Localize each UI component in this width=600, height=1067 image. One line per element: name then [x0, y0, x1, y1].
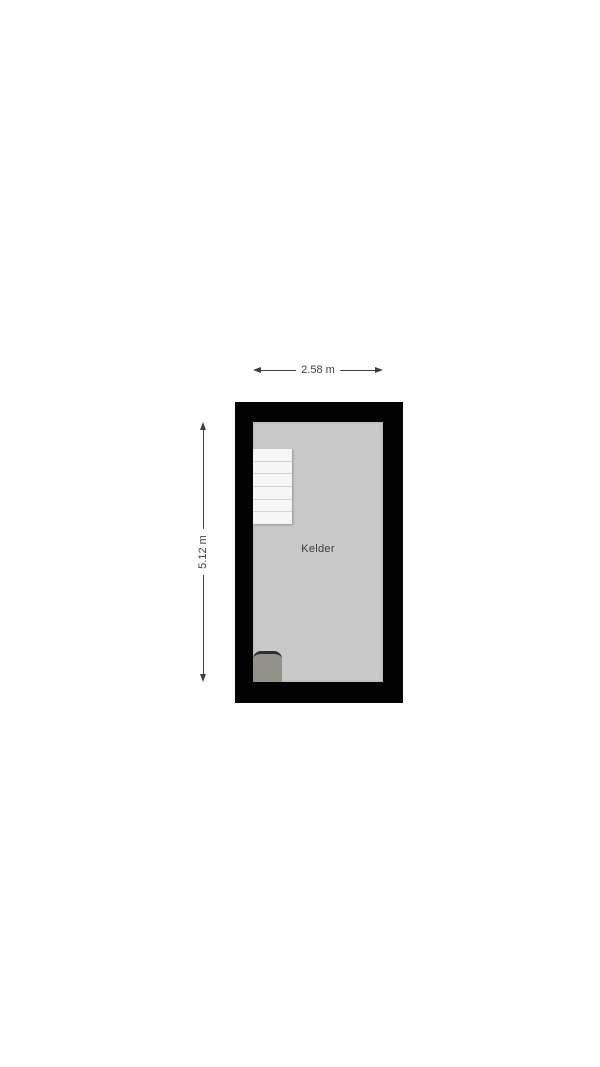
- stair-tread: [253, 449, 292, 462]
- stair-tread: [253, 462, 292, 475]
- dimension-width-label: 2.58 m: [296, 364, 340, 376]
- stair-tread: [253, 512, 292, 524]
- arrow-up-icon: [200, 422, 206, 430]
- stair-tread: [253, 500, 292, 513]
- stairs: [253, 449, 292, 524]
- stair-tread: [253, 487, 292, 500]
- dimension-width: 2.58 m: [253, 363, 383, 377]
- arrow-down-icon: [200, 674, 206, 682]
- dimension-height: 5.12 m: [196, 422, 210, 682]
- dimension-height-label: 5.12 m: [197, 529, 209, 575]
- room-label: Kelder: [253, 543, 383, 555]
- arrow-right-icon: [375, 367, 383, 373]
- boiler-fixture: [253, 651, 282, 682]
- arrow-left-icon: [253, 367, 261, 373]
- room-walls: Kelder: [235, 402, 403, 703]
- floorplan-canvas: 2.58 m 5.12 m Kelder: [0, 0, 600, 1067]
- stair-tread: [253, 474, 292, 487]
- room-floor: Kelder: [253, 422, 383, 682]
